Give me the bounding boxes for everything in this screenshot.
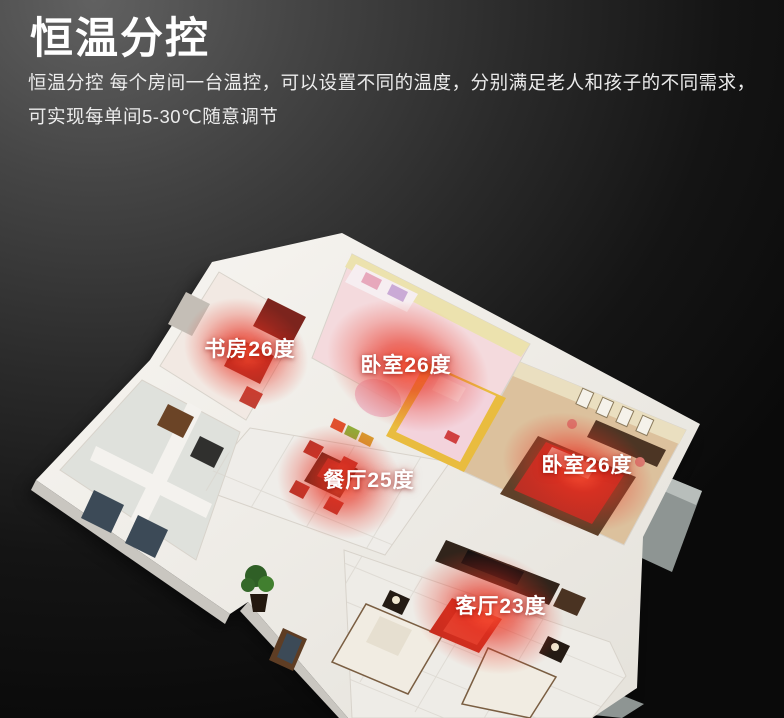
room-label-study: 书房26度 (204, 333, 295, 363)
room-label-bedroom-master: 卧室26度 (541, 449, 632, 479)
room-label-dining: 餐厅25度 (323, 464, 414, 494)
room-label-bedroom-kids: 卧室26度 (360, 349, 451, 379)
room-label-living: 客厅23度 (455, 590, 546, 620)
floorplan: 书房26度 卧室26度 卧室26度 餐厅25度 客厅23度 (0, 0, 784, 718)
